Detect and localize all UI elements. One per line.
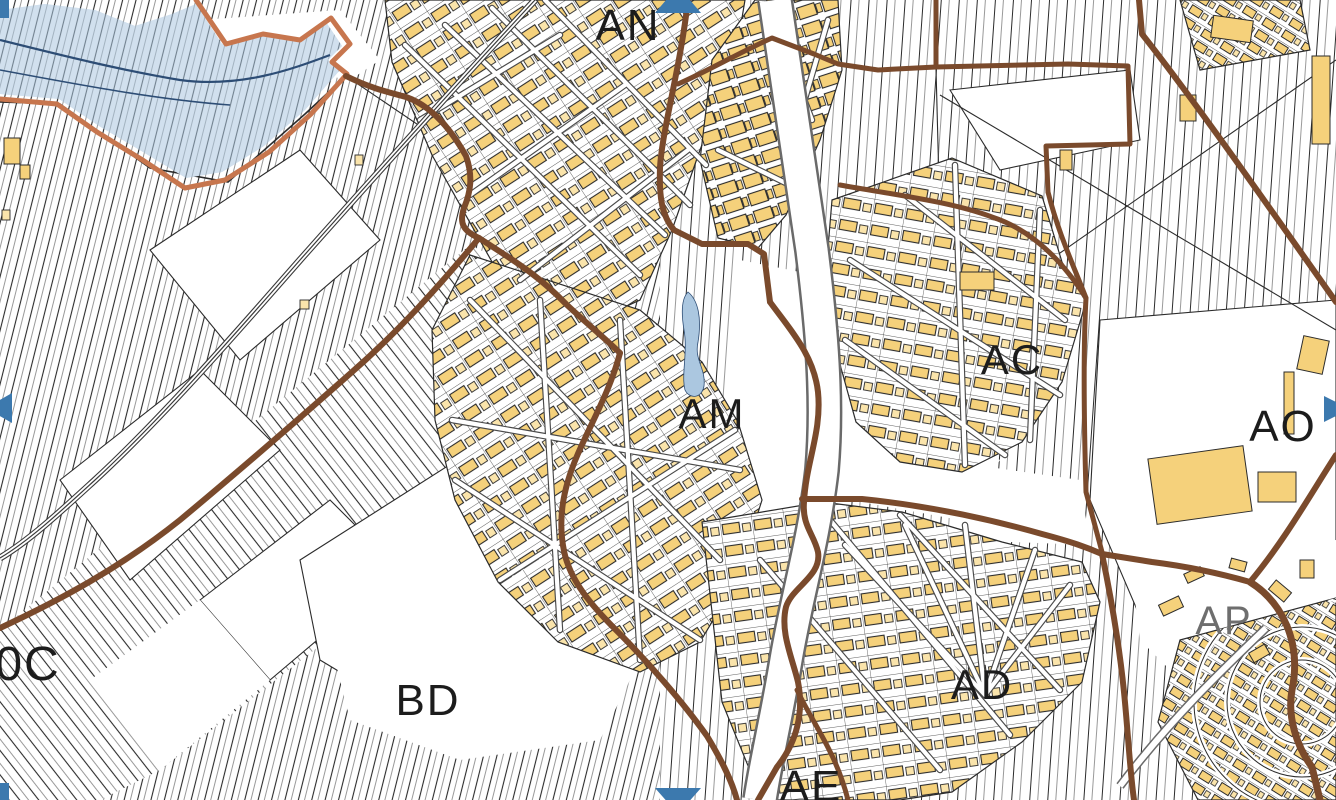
pan-corner-bottom-left-arrow[interactable] (0, 783, 9, 800)
section-label-AO: AO (1249, 402, 1317, 451)
section-label-BD: BD (395, 676, 460, 725)
section-label-AN: AN (595, 1, 660, 50)
section-label-AD: AD (951, 661, 1013, 708)
section-label-AM: AM (679, 390, 746, 437)
map-viewport[interactable]: ANAMACAOAPADAEBD0C (0, 0, 1336, 800)
section-label-0C: 0C (0, 638, 61, 691)
map-canvas[interactable]: ANAMACAOAPADAEBD0C (0, 0, 1336, 800)
section-label-AC: AC (981, 336, 1043, 383)
section-label-AE: AE (780, 762, 843, 800)
pan-corner-top-left-arrow[interactable] (0, 0, 9, 18)
section-label-AP: AP (1195, 599, 1252, 643)
